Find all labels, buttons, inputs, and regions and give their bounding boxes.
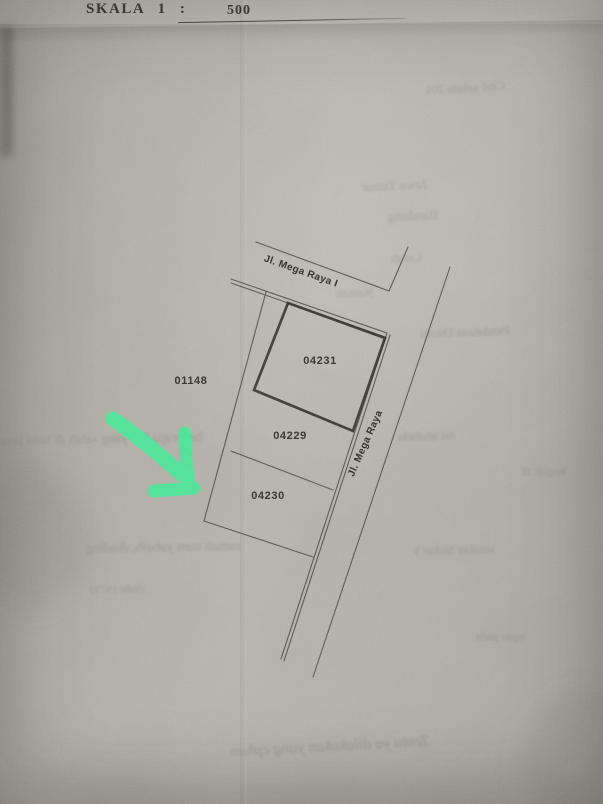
parcel-04230-south-boundary xyxy=(204,521,313,557)
arrow-head-bottom-stroke xyxy=(153,488,193,491)
paper-grain-texture xyxy=(0,0,603,804)
highlight-arrow xyxy=(112,419,193,491)
arrow-head-right-stroke xyxy=(184,433,187,483)
block-west-boundary xyxy=(204,292,266,521)
parcel-divider-04229-04230 xyxy=(231,451,333,490)
plot-map xyxy=(0,0,603,804)
scanned-plot-document: SKALA 1 : 500 Cttd xelam 201 Jawa Timur … xyxy=(0,0,603,804)
parcel-label-04231: 04231 xyxy=(295,355,345,367)
street-right-west-edge-b xyxy=(284,335,390,661)
parcel-label-04230: 04230 xyxy=(243,490,293,502)
parcel-label-04229: 04229 xyxy=(265,430,315,442)
arrow-shaft xyxy=(112,419,180,474)
paper-mottle-texture xyxy=(0,0,603,804)
street-right-east-edge xyxy=(313,267,450,677)
street-top-south-edge-a xyxy=(231,279,387,333)
parcel-label-01148: 01148 xyxy=(166,375,216,387)
